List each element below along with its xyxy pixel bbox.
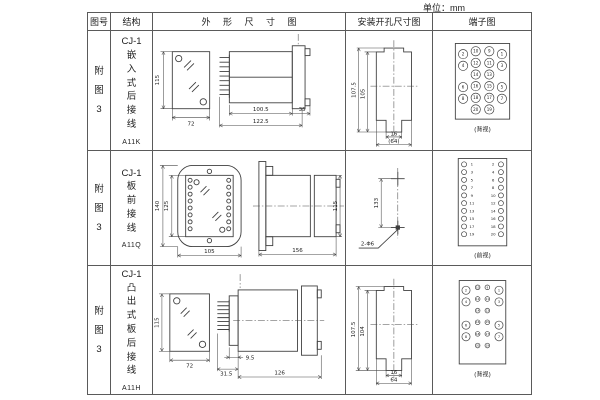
svg-text:9: 9	[470, 193, 473, 198]
svg-text:14: 14	[473, 71, 479, 76]
header-outline-diagram: 外 形 尺 寸 图	[153, 13, 346, 31]
terminal-caption: (前视)	[474, 251, 491, 259]
datasheet-page: 单位：mm 图号 结构 外 形 尺 寸 图 安装开孔尺寸图 端子图 附 图 3 …	[0, 0, 600, 400]
svg-text:6: 6	[461, 84, 464, 89]
svg-text:3: 3	[497, 300, 499, 304]
outline-cell-a11k: 115 72 100.5 35 122.5	[153, 31, 346, 151]
fig-no-a11k: 附 图 3	[88, 31, 111, 151]
svg-text:15: 15	[485, 320, 489, 324]
svg-text:7: 7	[500, 96, 503, 101]
svg-text:10: 10	[475, 285, 479, 289]
terminal-cell-a11h: 2468101214161820911131517191357 (背视)	[433, 266, 531, 394]
dim-cutout-inner-height: 104	[360, 326, 366, 337]
svg-text:4: 4	[491, 170, 494, 175]
terminal-pins: 2468101214161820911131517191357	[461, 285, 502, 348]
install-cell-a11h: 107.5 104 16 64	[346, 266, 433, 394]
install-drawing-a11h: 107.5 104 16 64	[347, 267, 432, 393]
spec-table: 图号 结构 外 形 尺 寸 图 安装开孔尺寸图 端子图 附 图 3 CJ-1 嵌…	[87, 12, 532, 395]
svg-text:12: 12	[490, 201, 495, 206]
svg-text:18: 18	[473, 95, 479, 100]
svg-text:13: 13	[469, 208, 474, 213]
install-drawing-a11k: 107.5 105 16 (64)	[347, 32, 432, 150]
structure-text: CJ-1 嵌 入 式 后 接 线	[121, 35, 141, 131]
svg-text:10: 10	[490, 193, 495, 198]
dim-front-height: 115	[154, 317, 160, 328]
dim-overall-width: 64	[390, 378, 397, 384]
terminal-caption: (背视)	[474, 125, 491, 133]
svg-text:17: 17	[485, 332, 489, 336]
side-view	[219, 45, 309, 108]
svg-text:16: 16	[475, 320, 479, 324]
outline-drawing-a11h: 115 72 9.5 31.5 126	[154, 267, 345, 393]
dim-cutout-inner-height: 105	[360, 88, 366, 98]
install-cell-a11q: 133 2-Φ6	[346, 151, 433, 266]
svg-text:18: 18	[475, 332, 479, 336]
install-cell-a11k: 107.5 105 16 (64)	[346, 31, 433, 151]
svg-text:5: 5	[500, 84, 503, 89]
svg-text:4: 4	[461, 63, 464, 68]
front-view	[177, 165, 240, 246]
svg-text:8: 8	[491, 185, 494, 190]
structure-text: CJ-1 凸 出 式 板 后 接 线	[121, 268, 141, 378]
header-fig-no: 图号	[88, 13, 111, 31]
svg-text:6: 6	[464, 323, 466, 327]
dim-base-depth: 9.5	[245, 355, 254, 361]
outline-drawing-a11q: 140 125 105 156 115	[154, 152, 345, 264]
svg-text:1: 1	[500, 51, 503, 56]
svg-text:11: 11	[469, 201, 474, 206]
svg-text:20: 20	[475, 343, 479, 347]
svg-text:5: 5	[470, 177, 473, 182]
dim-total-depth: 122.5	[252, 119, 268, 125]
structure-a11h: CJ-1 凸 出 式 板 后 接 线 A11H	[111, 266, 153, 394]
svg-text:17: 17	[486, 95, 492, 100]
svg-text:4: 4	[464, 300, 467, 304]
terminal-diagram-a11k: 2468101214161820911131517191357 (背视)	[434, 37, 531, 145]
structure-code: A11H	[122, 385, 141, 392]
svg-text:7: 7	[470, 185, 473, 190]
header-terminal-diagram: 端子图	[433, 13, 531, 31]
structure-a11q: CJ-1 板 前 接 线 A11Q	[111, 151, 153, 266]
dim-front-width: 72	[187, 121, 194, 127]
dim-slot-width: 16	[390, 131, 397, 137]
terminal-pins: 2468101214161820911131517191357	[458, 46, 506, 114]
dim-overall-width: (64)	[388, 139, 399, 145]
terminal-caption: (背视)	[474, 371, 491, 379]
header-structure: 结构	[111, 13, 153, 31]
dim-body-height: 115	[332, 200, 338, 211]
dim-front-width: 105	[204, 249, 215, 255]
svg-text:12: 12	[475, 297, 479, 301]
svg-text:9: 9	[486, 285, 488, 289]
svg-text:7: 7	[497, 335, 499, 339]
dim-cutout-outer-height: 107.5	[351, 82, 357, 98]
outline-drawing-a11k: 115 72 100.5 35 122.5	[154, 32, 345, 150]
outline-cell-a11h: 115 72 9.5 31.5 126	[153, 266, 346, 394]
dim-pin-depth: 31.5	[220, 372, 233, 378]
svg-text:3: 3	[470, 170, 473, 175]
svg-text:19: 19	[469, 232, 474, 237]
svg-text:15: 15	[469, 216, 474, 221]
terminal-diagram-a11h: 2468101214161820911131517191357 (背视)	[434, 271, 531, 389]
terminal-body	[458, 159, 507, 246]
hole-size-label: 2-Φ6	[360, 242, 374, 248]
structure-text: CJ-1 板 前 接 线	[121, 167, 141, 236]
svg-text:20: 20	[490, 232, 495, 237]
terminal-body	[459, 281, 506, 364]
dim-body-depth: 100.5	[252, 107, 268, 113]
front-view	[169, 294, 209, 351]
terminal-pins: 1357911131517192468101214161820	[461, 162, 503, 237]
svg-text:1: 1	[497, 288, 499, 292]
dim-inner-height: 125	[164, 200, 170, 211]
svg-text:9: 9	[487, 48, 490, 53]
front-view	[172, 51, 209, 108]
dim-front-height: 140	[154, 200, 160, 211]
dim-front-height: 115	[155, 74, 161, 85]
svg-text:19: 19	[486, 106, 492, 111]
svg-text:19: 19	[485, 343, 489, 347]
fig-no-a11h: 附 图 3	[88, 266, 111, 394]
structure-a11k: CJ-1 嵌 入 式 后 接 线 A11K	[111, 31, 153, 151]
svg-text:15: 15	[486, 83, 492, 88]
svg-text:16: 16	[473, 83, 479, 88]
dim-hole-spacing: 133	[373, 197, 379, 208]
dim-body-depth: 156	[292, 248, 303, 254]
terminal-cell-a11k: 2468101214161820911131517191357 (背视)	[433, 31, 531, 151]
svg-text:14: 14	[475, 309, 479, 313]
svg-text:18: 18	[490, 224, 495, 229]
outline-cell-a11q: 140 125 105 156 115	[153, 151, 346, 266]
install-drawing-a11q: 133 2-Φ6	[347, 152, 432, 264]
svg-text:2: 2	[461, 51, 464, 56]
svg-text:11: 11	[486, 60, 492, 65]
svg-text:11: 11	[485, 297, 489, 301]
structure-code: A11Q	[122, 242, 141, 249]
dim-slot-width: 16	[390, 370, 397, 376]
svg-text:2: 2	[464, 288, 466, 292]
svg-text:13: 13	[486, 71, 492, 76]
svg-text:20: 20	[473, 106, 479, 111]
terminal-cell-a11q: 1357911131517192468101214161820 (前视)	[433, 151, 531, 266]
svg-text:8: 8	[461, 96, 464, 101]
svg-text:14: 14	[490, 208, 495, 213]
dim-front-width: 72	[186, 364, 193, 370]
svg-text:3: 3	[500, 63, 503, 68]
dim-body-depth: 126	[274, 371, 285, 377]
dim-cutout-outer-height: 107.5	[350, 322, 356, 338]
structure-code: A11K	[122, 139, 141, 146]
svg-text:8: 8	[464, 335, 466, 339]
svg-text:10: 10	[473, 48, 479, 53]
svg-text:5: 5	[497, 323, 499, 327]
svg-text:16: 16	[490, 216, 495, 221]
terminal-diagram-a11q: 1357911131517192468101214161820 (前视)	[434, 153, 531, 263]
fig-no-a11q: 附 图 3	[88, 151, 111, 266]
svg-text:13: 13	[485, 309, 489, 313]
svg-text:12: 12	[473, 60, 479, 65]
side-view	[217, 286, 321, 355]
svg-text:1: 1	[470, 162, 473, 167]
svg-text:2: 2	[491, 162, 494, 167]
svg-text:6: 6	[491, 177, 494, 182]
svg-text:17: 17	[469, 224, 474, 229]
header-install-holes: 安装开孔尺寸图	[346, 13, 433, 31]
